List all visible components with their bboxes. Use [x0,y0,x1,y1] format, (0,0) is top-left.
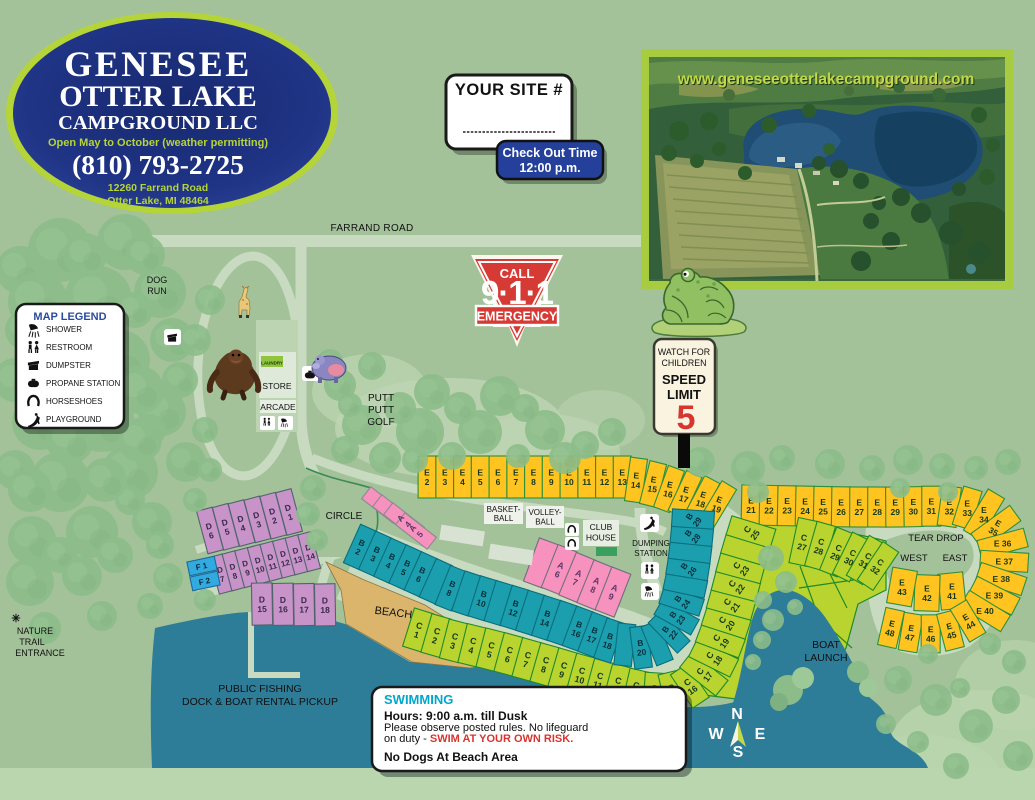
svg-text:E: E [981,505,987,515]
svg-text:E: E [495,468,501,478]
svg-text:E: E [949,582,955,592]
svg-text:E: E [838,497,844,507]
svg-text:GOLF: GOLF [367,417,394,428]
svg-text:PLAYGROUND: PLAYGROUND [46,415,102,424]
svg-text:DUMPING: DUMPING [632,539,670,548]
svg-text:S: S [733,744,744,761]
svg-text:RESTROOM: RESTROOM [46,343,93,352]
svg-text:SHOWER: SHOWER [46,325,82,334]
svg-text:(810) 793-2725: (810) 793-2725 [72,149,244,180]
svg-text:ENTRANCE: ENTRANCE [15,648,65,658]
svg-text:OTTER LAKE: OTTER LAKE [59,80,257,113]
svg-text:E: E [802,497,808,507]
svg-text:E: E [910,497,916,507]
svg-text:13: 13 [617,477,627,487]
svg-text:Open May to October (weather p: Open May to October (weather permitting) [48,137,268,149]
svg-text:TEAR DROP: TEAR DROP [908,533,963,544]
svg-text:PUTT: PUTT [368,393,394,404]
svg-text:33: 33 [962,508,972,518]
svg-text:12: 12 [600,477,610,487]
svg-text:20: 20 [636,647,647,658]
svg-text:E: E [856,498,862,508]
svg-text:E: E [924,584,930,594]
svg-text:GENESEE: GENESEE [64,44,252,84]
svg-text:E 36: E 36 [994,539,1012,549]
svg-text:E: E [874,498,880,508]
svg-text:DOCK & BOAT RENTAL PICKUP: DOCK & BOAT RENTAL PICKUP [182,696,338,708]
svg-text:29: 29 [890,507,900,517]
svg-text:41: 41 [947,591,957,601]
svg-text:46: 46 [926,634,936,644]
svg-text:15: 15 [257,604,267,614]
svg-text:2: 2 [425,477,430,487]
svg-text:E: E [928,624,934,634]
svg-text:18: 18 [320,605,330,615]
svg-text:E: E [584,468,590,478]
svg-text:E 39: E 39 [986,591,1004,601]
svg-text:SWIMMING: SWIMMING [384,692,453,707]
svg-text:3: 3 [442,477,447,487]
svg-text:E: E [892,498,898,508]
svg-text:DUMPSTER: DUMPSTER [46,361,91,370]
svg-text:YOUR SITE #: YOUR SITE # [455,81,563,99]
svg-text:E: E [784,496,790,506]
svg-text:E: E [602,468,608,478]
svg-text:RUN: RUN [147,286,167,296]
svg-text:PROPANE STATION: PROPANE STATION [46,379,120,388]
svg-text:E: E [477,468,483,478]
svg-text:SPEED: SPEED [662,372,706,387]
svg-text:CLUB: CLUB [590,522,613,532]
svg-text:31: 31 [927,506,937,516]
svg-text:47: 47 [904,632,915,643]
svg-text:5: 5 [478,477,483,487]
svg-text:E: E [755,726,766,743]
svg-text:CAMPGROUND LLC: CAMPGROUND LLC [58,112,258,134]
svg-text:7: 7 [513,477,518,487]
svg-text:14: 14 [630,480,641,491]
svg-text:on duty - SWIM AT YOUR OWN RIS: on duty - SWIM AT YOUR OWN RISK. [384,733,573,745]
svg-text:LAUNDRY: LAUNDRY [261,361,283,366]
svg-text:ARCADE: ARCADE [260,402,296,412]
svg-text:6: 6 [496,477,501,487]
svg-text:23: 23 [782,506,792,516]
svg-text:Otter Lake, MI 48464: Otter Lake, MI 48464 [107,195,209,207]
svg-text:Hours: 9:00 a.m. till Dusk: Hours: 9:00 a.m. till Dusk [384,709,528,723]
svg-text:E: E [899,578,905,588]
svg-text:E 40: E 40 [976,606,994,616]
svg-text:W: W [708,726,724,743]
svg-text:24: 24 [800,506,810,516]
svg-text:34: 34 [979,514,989,524]
svg-text:BOAT: BOAT [812,639,840,651]
svg-text:CHILDREN: CHILDREN [662,358,707,368]
svg-text:CIRCLE: CIRCLE [326,511,363,522]
svg-text:15: 15 [647,483,658,494]
svg-text:12260 Farrand Road: 12260 Farrand Road [108,182,208,194]
svg-text:Check Out Time: Check Out Time [503,146,598,160]
svg-text:EMERGENCY: EMERGENCY [477,310,558,324]
svg-text:TRAIL: TRAIL [19,637,45,647]
svg-text:PUTT: PUTT [368,405,394,416]
svg-text:28: 28 [872,507,882,517]
svg-text:21: 21 [746,505,756,515]
svg-text:5: 5 [677,399,696,437]
svg-text:43: 43 [897,587,907,597]
svg-text:E: E [424,468,430,478]
svg-text:27: 27 [854,507,864,517]
svg-text:STORE: STORE [262,381,291,391]
svg-text:✳: ✳ [11,613,20,625]
svg-text:WEST: WEST [900,553,928,564]
svg-text:PUBLIC FISHING: PUBLIC FISHING [218,683,301,695]
svg-text:9: 9 [549,477,554,487]
svg-text:No Dogs At Beach Area: No Dogs At Beach Area [384,750,518,764]
svg-text:11: 11 [582,477,591,487]
svg-text:12:00 p.m.: 12:00 p.m. [519,161,580,175]
svg-text:26: 26 [836,507,846,517]
svg-text:42: 42 [922,593,932,603]
svg-text:30: 30 [909,507,919,517]
svg-text:BASKET-: BASKET- [487,505,521,514]
svg-text:HOUSE: HOUSE [586,533,617,543]
svg-text:8: 8 [531,477,536,487]
svg-text:4: 4 [460,477,465,487]
svg-text:E: E [820,497,826,507]
svg-text:BALL: BALL [494,514,514,523]
svg-text:MAP LEGEND: MAP LEGEND [33,311,106,323]
svg-text:E: E [513,468,519,478]
svg-text:FARRAND ROAD: FARRAND ROAD [330,223,413,234]
svg-text:WATCH FOR: WATCH FOR [658,347,710,357]
svg-text:DOG: DOG [147,275,168,285]
svg-text:E: E [531,468,537,478]
svg-text:22: 22 [764,505,774,515]
svg-text:10: 10 [564,477,574,487]
svg-text:17: 17 [299,605,309,615]
svg-text:16: 16 [278,604,288,614]
svg-text:N: N [731,706,743,723]
svg-text:LAUNCH: LAUNCH [804,652,847,664]
svg-text:VOLLEY-: VOLLEY- [528,508,561,517]
svg-text:BALL: BALL [535,518,555,527]
svg-text:32: 32 [945,506,955,516]
svg-text:NATURE: NATURE [17,626,53,636]
svg-text:E: E [964,498,970,508]
svg-text:E 37: E 37 [995,556,1013,566]
svg-text:STATION: STATION [634,549,668,558]
svg-text:E: E [619,468,625,478]
svg-text:HORSESHOES: HORSESHOES [46,397,102,406]
svg-text:E 38: E 38 [992,574,1010,584]
svg-text:E: E [928,497,934,507]
svg-text:25: 25 [818,507,828,517]
svg-text:E: E [460,468,466,478]
svg-text:EAST: EAST [943,553,968,564]
svg-text:www.geneseeotterlakecampground: www.geneseeotterlakecampground.com [677,71,975,88]
